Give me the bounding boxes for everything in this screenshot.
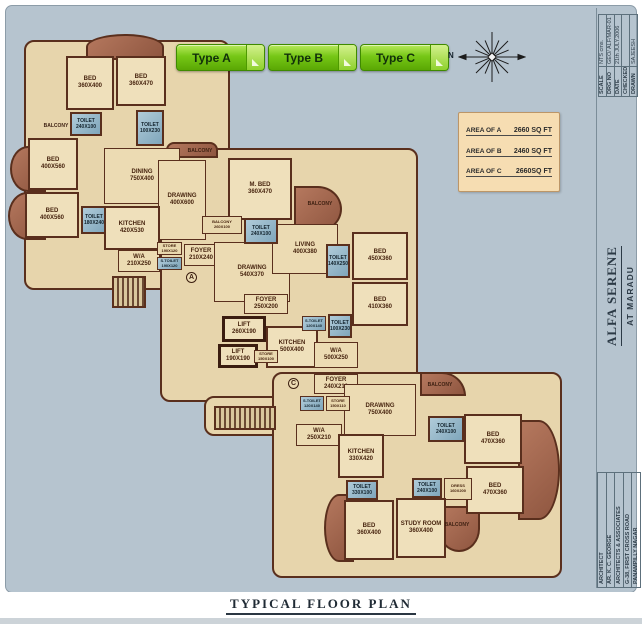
info-label: CHECKED xyxy=(622,66,629,96)
room-toilet: TOILET 140X250 xyxy=(326,244,350,278)
project-location: AT MARADU xyxy=(625,266,635,326)
area-label: AREA OF C xyxy=(466,168,502,175)
type-a-button-label: Type A xyxy=(177,45,246,70)
area-value: 2660SQ FT xyxy=(516,168,552,175)
type-c-button-label: Type C xyxy=(361,45,430,70)
architect-row: ARCHITECT xyxy=(598,473,607,587)
area-row: AREA OF C 2660SQ FT xyxy=(466,168,552,177)
room-balcony: BALCONY 260X100 xyxy=(202,216,242,234)
page: DINING 750X400DRAWING 400X600W/A 210X250… xyxy=(0,0,642,624)
bottom-strip xyxy=(0,618,642,624)
dropdown-arrow-icon[interactable] xyxy=(338,45,356,70)
type-b-button-label: Type B xyxy=(269,45,338,70)
area-value: 2460 SQ FT xyxy=(514,148,552,155)
room-bed: BED 360X400 xyxy=(344,500,394,560)
page-title: TYPICAL FLOOR PLAN xyxy=(226,596,416,615)
room-bed: BED 360X470 xyxy=(116,56,166,106)
title-block-info: SCALE NTS cms. DRG NO GEO/ ALF/MAR-01 DA… xyxy=(598,14,638,97)
area-label: AREA OF A xyxy=(466,127,501,134)
info-value: SAJEESH xyxy=(631,15,637,66)
architect-block: ARCHITECT AR. K. C. GEORGE ARCHITECTS & … xyxy=(597,472,641,588)
room-bed: BED 470X360 xyxy=(466,466,524,514)
triangle-icon xyxy=(344,59,351,66)
info-row: DRG NO GEO/ ALF/MAR-01 xyxy=(607,15,615,96)
room-bed: BED 400X560 xyxy=(28,138,78,190)
project-name: ALFA SERENE xyxy=(604,246,622,346)
dropdown-arrow-icon[interactable] xyxy=(246,45,264,70)
room-w-a: W/A 500X250 xyxy=(314,342,358,368)
room-bed: BED 360X400 xyxy=(66,56,114,110)
floor-plan: DINING 750X400DRAWING 400X600W/A 210X250… xyxy=(0,0,642,592)
info-label: DATE xyxy=(615,66,622,96)
room-store: STORE 190X120 xyxy=(157,242,182,255)
info-row: DRAWN SAJEESH xyxy=(630,15,637,96)
balcony-label: BALCONY xyxy=(36,121,76,131)
architect-row: G-38, FIRST CROSS ROAD xyxy=(624,473,633,587)
dropdown-arrow-icon[interactable] xyxy=(430,45,448,70)
room-store: STORE 150X100 xyxy=(254,350,278,363)
info-row: CHECKED xyxy=(622,15,630,96)
area-row: AREA OF A 2660 SQ FT xyxy=(466,127,552,136)
room-lift: LIFT 190X190 xyxy=(218,344,258,368)
balcony-label: BALCONY xyxy=(434,520,480,530)
caption-bar: TYPICAL FLOOR PLAN xyxy=(0,592,642,618)
type-b-button[interactable]: Type B xyxy=(268,44,357,71)
room-bed: BED 450X360 xyxy=(352,232,408,280)
balcony-label: BALCONY xyxy=(418,380,462,390)
room-drawing: DRAWING 400X600 xyxy=(158,160,206,240)
room-s-toilet: S.TOILET 120X140 xyxy=(302,316,326,331)
room-drawing: DRAWING 750X400 xyxy=(344,384,416,436)
info-label: DRAWN xyxy=(630,66,637,96)
type-a-button[interactable]: Type A xyxy=(176,44,265,71)
type-c-button[interactable]: Type C xyxy=(360,44,449,71)
stairs xyxy=(214,406,276,430)
stairs xyxy=(112,276,146,308)
info-value: GEO/ ALF/MAR-01 xyxy=(607,15,613,66)
area-label: AREA OF B xyxy=(466,148,502,155)
area-table: AREA OF A 2660 SQ FT AREA OF B 2460 SQ F… xyxy=(458,112,560,192)
compass-north-label: N xyxy=(448,51,454,60)
compass-rose-icon xyxy=(458,26,526,88)
info-label: SCALE xyxy=(599,66,606,96)
room-lift: LIFT 260X190 xyxy=(222,316,266,342)
area-row: AREA OF B 2460 SQ FT xyxy=(466,148,552,157)
room-dress: DRESS 160X200 xyxy=(444,478,472,500)
unit-marker: C xyxy=(288,378,299,389)
room-s-toilet: S.TOILET 190X120 xyxy=(157,257,182,270)
balcony-label: BALCONY xyxy=(178,146,222,156)
info-row: SCALE NTS cms. xyxy=(599,15,607,96)
room-store: STORE 150X110 xyxy=(326,396,350,411)
room-kitchen: KITCHEN 420X530 xyxy=(104,206,160,250)
room-bed: BED 400X560 xyxy=(25,192,79,238)
room-foyer: FOYER 210X240 xyxy=(184,244,218,266)
room-w-a: W/A 210X250 xyxy=(118,250,160,272)
room-foyer: FOYER 250X200 xyxy=(244,294,288,314)
triangle-icon xyxy=(252,59,259,66)
room-m-bed: M. BED 360X470 xyxy=(228,158,292,220)
architect-row: AR. K. C. GEORGE xyxy=(607,473,616,587)
room-toilet: TOILET 330X100 xyxy=(346,480,378,500)
room-toilet: TOILET 240X100 xyxy=(244,218,278,244)
architect-row: ARCHITECTS & ASSOCIATES xyxy=(615,473,624,587)
room-toilet: TOILET 100X230 xyxy=(136,110,164,146)
info-label: DRG NO xyxy=(607,66,614,96)
info-row: DATE 21th JULY.2006 xyxy=(615,15,623,96)
room-w-a: W/A 250X210 xyxy=(296,424,342,446)
info-value: NTS cms. xyxy=(599,15,605,66)
project-title-block: ALFA SERENE AT MARADU xyxy=(601,236,637,356)
compass: N xyxy=(448,26,526,88)
room-s-toilet: S.TOILET 120X140 xyxy=(300,396,324,411)
room-bed: BED 410X360 xyxy=(352,282,408,326)
room-bed: BED 470X360 xyxy=(464,414,522,464)
architect-row: PANAMPILLY NAGAR xyxy=(632,473,640,587)
triangle-icon xyxy=(436,59,443,66)
room-toilet: TOILET 100X230 xyxy=(328,314,352,338)
balcony-label: BALCONY xyxy=(298,199,342,209)
room-kitchen: KITCHEN 330X420 xyxy=(338,434,384,478)
balcony xyxy=(518,420,560,520)
area-value: 2660 SQ FT xyxy=(514,127,552,134)
unit-type-toolbar: Type A Type B Type C xyxy=(176,44,449,71)
room-toilet: TOILET 240X100 xyxy=(412,478,442,498)
unit-marker: A xyxy=(186,272,197,283)
room-toilet: TOILET 240X100 xyxy=(428,416,464,442)
info-value: 21th JULY.2006 xyxy=(615,15,621,66)
